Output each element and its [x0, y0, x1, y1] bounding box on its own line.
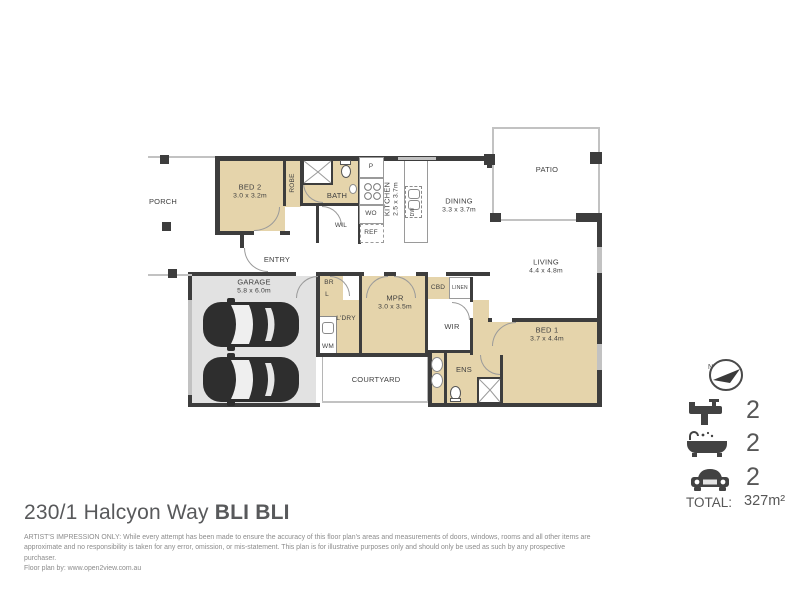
- room-label-dining: DINING3.3 x 3.7m: [442, 197, 476, 216]
- disclaimer-line: approximate and no responsibility is tak…: [24, 543, 599, 564]
- room-label-fridge: REF: [364, 229, 378, 237]
- porch-edge: [148, 156, 215, 158]
- disclaimer-line: Floor plan by: www.open2view.com.au: [24, 564, 599, 574]
- compass-icon: N: [702, 354, 748, 396]
- room-label-courtyard: COURTYARD: [352, 375, 401, 385]
- svg-text:N: N: [708, 364, 713, 371]
- basin-icon: [431, 373, 443, 388]
- room-label-porch: PORCH: [149, 197, 177, 207]
- garage-door: [188, 300, 192, 395]
- room-label-linen: LINEN: [452, 285, 468, 292]
- window: [398, 157, 436, 160]
- wall: [444, 352, 447, 404]
- room-label-l: L: [325, 291, 329, 299]
- total-value: 327m²: [744, 493, 785, 509]
- cooktop-icon: [362, 181, 382, 202]
- door-arc: [452, 302, 470, 320]
- patio-corner: [576, 213, 602, 222]
- wall: [359, 272, 362, 355]
- room-label-living: LIVING4.4 x 4.8m: [529, 258, 563, 277]
- room-label-wir: WIR: [444, 322, 459, 332]
- porch-pillar: [160, 155, 169, 164]
- wall: [215, 156, 220, 235]
- room-label-kitchen: KITCHEN2.5 x 3.7m: [383, 182, 402, 216]
- disclaimer: ARTIST'S IMPRESSION ONLY: While every at…: [24, 533, 599, 574]
- toilet-icon: [341, 165, 351, 178]
- wall: [428, 403, 602, 407]
- room-label-dishwasher: DW: [410, 208, 417, 217]
- porch-pillar: [162, 222, 171, 231]
- tap-icon: [688, 398, 726, 425]
- sink-bowl: [408, 189, 420, 199]
- room-label-robe: ROBE: [289, 173, 297, 192]
- room-label-mpr: MPR3.0 x 3.5m: [378, 294, 412, 313]
- porch-pillar: [168, 269, 177, 278]
- car-top-icon: [201, 297, 301, 352]
- door-opening: [364, 272, 384, 276]
- wall: [316, 203, 319, 243]
- car-top-icon: [201, 352, 301, 407]
- floor-plan-page: { "plan": { "rooms": { "porch": {"name":…: [0, 0, 800, 600]
- window: [597, 344, 602, 370]
- patio-pillar: [590, 152, 602, 164]
- tap-count: 2: [746, 396, 760, 425]
- room-label-garage: GARAGE5.8 x 6.0m: [237, 278, 271, 297]
- room-label-bed2: BED 23.0 x 3.2m: [233, 183, 267, 202]
- laundry-tub-icon: [322, 322, 334, 334]
- shower-icon: [302, 159, 333, 185]
- wall: [215, 156, 492, 161]
- wall: [427, 350, 473, 353]
- room-label-wm: WM: [322, 343, 334, 351]
- room-label-br: BR: [324, 279, 333, 287]
- patio-corner: [484, 154, 495, 165]
- bath-count: 2: [746, 429, 760, 458]
- room-label-pantry: P: [369, 163, 374, 171]
- toilet-icon: [450, 398, 461, 402]
- door-opening: [428, 272, 446, 276]
- room-label-wall-oven: WO: [365, 210, 377, 218]
- car-count: 2: [746, 463, 760, 492]
- door-opening: [492, 318, 512, 322]
- room-label-laundry: L'DRY: [336, 315, 355, 323]
- room-label-ens: ENS: [456, 365, 472, 375]
- room-label-bath: BATH: [327, 191, 347, 201]
- room-label-cbd: CBD: [431, 284, 445, 292]
- car-front-icon: [690, 465, 730, 493]
- basin-icon: [349, 184, 357, 194]
- room-label-patio: PATIO: [536, 165, 558, 175]
- wall: [425, 275, 428, 355]
- shower-icon: [477, 377, 502, 404]
- room-label-bed1: BED 13.7 x 4.4m: [530, 326, 564, 345]
- patio-corner: [490, 213, 501, 222]
- window: [597, 247, 602, 273]
- patio-edge: [492, 127, 494, 221]
- door-opening: [254, 231, 280, 235]
- total-label: TOTAL:: [686, 495, 732, 510]
- door-opening: [396, 272, 416, 276]
- patio-edge: [492, 127, 600, 129]
- bathtub-icon: [686, 430, 728, 458]
- courtyard-edge: [322, 401, 428, 403]
- wall: [283, 159, 286, 206]
- wall: [301, 203, 358, 206]
- room-label-wil: WIL: [335, 222, 347, 230]
- wall: [240, 235, 244, 248]
- patio-edge: [598, 127, 600, 221]
- address-title: 230/1 Halcyon Way BLI BLI: [24, 501, 290, 525]
- door-opening: [470, 302, 473, 318]
- basin-icon: [431, 357, 443, 372]
- wall: [319, 353, 430, 357]
- disclaimer-line: ARTIST'S IMPRESSION ONLY: While every at…: [24, 533, 599, 543]
- room-label-entry: ENTRY: [264, 255, 290, 265]
